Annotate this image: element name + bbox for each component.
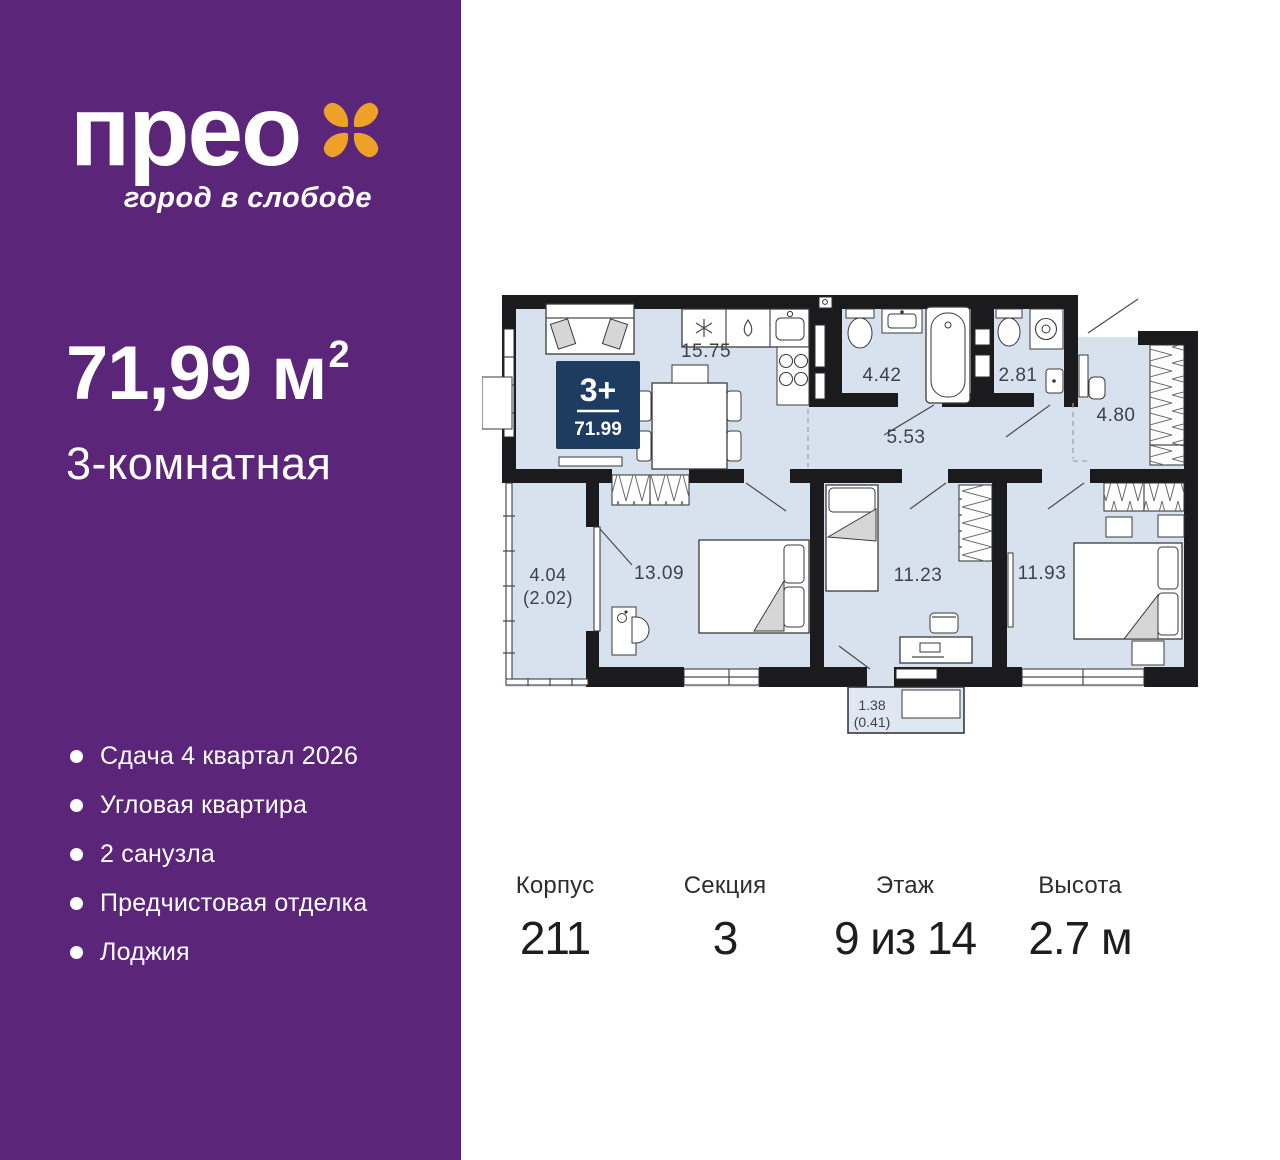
washing-machine-icon (1030, 309, 1063, 349)
room-label-bedroom1: 13.09 (634, 563, 684, 584)
floor-plan-canvas: 3+ 71.99 15.75 4.42 2.81 4.80 5.53 13.09… (482, 291, 1202, 751)
stat-value: 3 (630, 911, 820, 965)
feature-item: Предчистовая отделка (70, 889, 367, 918)
brand-flower-icon (314, 92, 388, 168)
area-superscript: 2 (329, 334, 349, 376)
stat-floor: Этаж 9 из 14 (820, 872, 990, 965)
toilet-icon (996, 309, 1022, 346)
wardrobe-icon (1104, 483, 1184, 511)
sofa-icon (546, 304, 634, 354)
room-label-hallway: 5.53 (887, 427, 926, 448)
single-bed-icon (826, 485, 878, 591)
room-label-kitchen-living: 15.75 (681, 341, 731, 362)
nightstand-icon (1132, 641, 1164, 665)
feature-item: Сдача 4 квартал 2026 (70, 742, 367, 771)
room-count-badge: 3+ 71.99 (556, 361, 640, 449)
stat-value: 211 (480, 911, 630, 965)
room-label-bathroom: 4.42 (863, 365, 902, 386)
stat-value: 2.7 м (990, 911, 1170, 965)
stat-value: 9 из 14 (820, 911, 990, 965)
room-label-loggia-reduced: (2.02) (523, 588, 573, 608)
double-bed-icon (1074, 543, 1182, 639)
floor-plan: 3+ 71.99 15.75 4.42 2.81 4.80 5.53 13.09… (482, 291, 1202, 751)
brand-logo-text: прео (70, 90, 300, 172)
double-bed-icon (699, 540, 809, 633)
wardrobe-icon (1150, 345, 1184, 465)
apartment-area-value: 71,99 м (66, 331, 327, 416)
sidebar: прео город в слободе 71,99 м2 3-комнатна… (0, 0, 461, 1160)
stat-label: Корпус (480, 872, 630, 900)
apartment-stats: Корпус 211 Секция 3 Этаж 9 из 14 Высота … (480, 872, 1170, 965)
room-label-loggia: 4.04 (529, 565, 566, 585)
stat-label: Высота (990, 872, 1170, 900)
nightstand-icon (1158, 515, 1184, 537)
apartment-area: 71,99 м2 (66, 336, 347, 412)
nightstand-icon (1106, 517, 1132, 537)
room-label-entry: 4.80 (1097, 405, 1136, 426)
room-label-balcony-reduced: (0.41) (854, 714, 891, 730)
bathtub-icon (926, 307, 970, 403)
svg-text:71.99: 71.99 (574, 419, 622, 440)
brand-logo: прео город в слободе (70, 90, 372, 215)
svg-text:3+: 3+ (580, 372, 616, 408)
stat-building: Корпус 211 (480, 872, 630, 965)
entrance-door-icon (1088, 299, 1138, 333)
stove-icon (777, 347, 809, 405)
tv-stand-icon (559, 457, 622, 466)
stat-ceiling-height: Высота 2.7 м (990, 872, 1170, 965)
toilet-icon (846, 309, 874, 348)
stat-label: Этаж (820, 872, 990, 900)
sink-icon (882, 309, 922, 333)
feature-item: Угловая квартира (70, 791, 367, 820)
stat-section: Секция 3 (630, 872, 820, 965)
door-leaf (1008, 553, 1013, 627)
room-label-bedroom3: 11.93 (1018, 563, 1067, 584)
room-label-toilet: 2.81 (999, 365, 1038, 386)
feature-list: Сдача 4 квартал 2026 Угловая квартира 2 … (70, 742, 367, 987)
stat-label: Секция (630, 872, 820, 900)
sink-icon (1046, 369, 1063, 393)
apartment-type: 3-комнатная (66, 438, 331, 490)
feature-item: Лоджия (70, 938, 367, 967)
wardrobe-icon (959, 485, 992, 561)
room-label-balcony: 1.38 (858, 697, 885, 713)
wardrobe-icon (612, 475, 689, 505)
feature-item: 2 санузла (70, 840, 367, 869)
room-label-bedroom2: 11.23 (894, 565, 943, 586)
